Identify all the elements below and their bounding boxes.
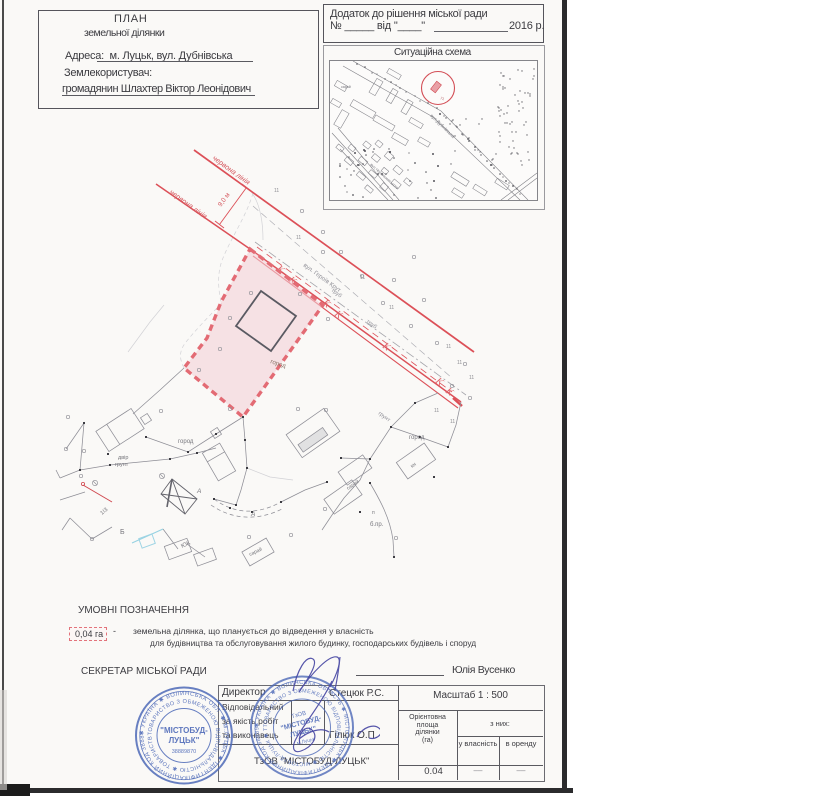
svg-text:11: 11 (457, 360, 462, 366)
svg-text:грунт: грунт (115, 462, 129, 468)
svg-text:11: 11 (446, 344, 451, 350)
svg-text:11: 11 (360, 275, 365, 281)
svg-text:б.пр.: б.пр. (370, 522, 384, 528)
svg-text:11: 11 (389, 305, 394, 311)
svg-text:червона лінія: червона лінія (168, 187, 209, 220)
svg-text:К: К (432, 375, 446, 389)
svg-text:кн: кн (410, 462, 418, 470)
svg-text:11: 11 (296, 235, 301, 241)
svg-text:ЛУЦЬК": ЛУЦЬК" (169, 736, 200, 745)
svg-text:11: 11 (274, 188, 279, 194)
svg-text:11: 11 (434, 408, 439, 414)
svg-text:двір: двір (118, 455, 128, 461)
svg-text:71: 71 (440, 96, 445, 101)
svg-text:Б: Б (120, 529, 125, 536)
svg-text:1ІЗ: 1ІЗ (99, 506, 109, 516)
svg-text:11: 11 (450, 419, 455, 425)
svg-text:грунт: грунт (377, 411, 392, 424)
svg-text:сарай: сарай (341, 85, 351, 89)
svg-text:червона лінія: червона лінія (211, 153, 252, 186)
svg-text:А: А (250, 511, 255, 518)
svg-text:9,0 м: 9,0 м (217, 191, 232, 208)
svg-text:город: город (178, 439, 194, 445)
svg-text:А: А (196, 488, 201, 495)
svg-text:11: 11 (469, 375, 474, 381)
svg-text:38889870: 38889870 (172, 749, 196, 755)
svg-text:"МІСТОБУД-: "МІСТОБУД- (160, 726, 208, 735)
svg-text:город: город (409, 435, 425, 441)
svg-text:п: п (372, 510, 375, 516)
